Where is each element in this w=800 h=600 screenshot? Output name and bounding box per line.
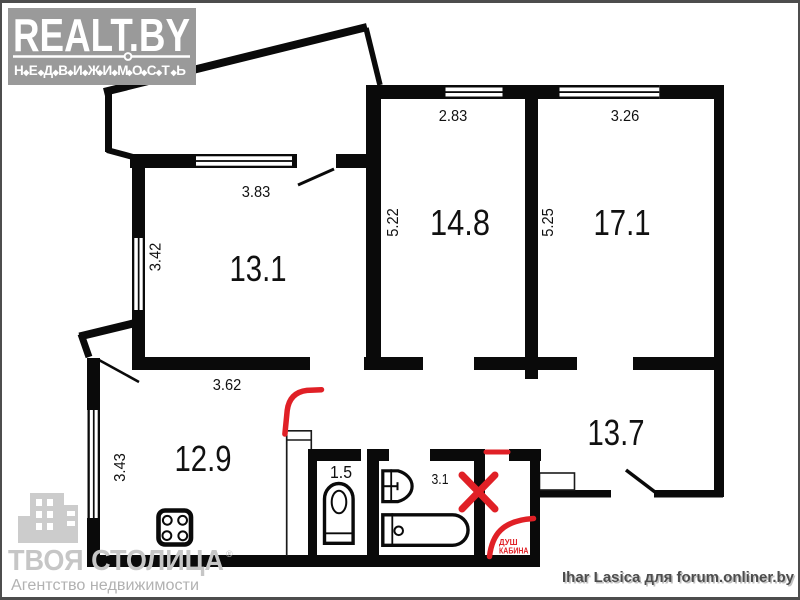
svg-text:3.83: 3.83 xyxy=(242,184,271,201)
svg-text:3.1: 3.1 xyxy=(432,471,449,488)
svg-text:5.22: 5.22 xyxy=(385,208,402,237)
svg-text:ТВОЯ СТОЛИЦА: ТВОЯ СТОЛИЦА xyxy=(8,545,224,577)
svg-text:13.1: 13.1 xyxy=(230,248,287,289)
svg-text:3.43: 3.43 xyxy=(112,453,129,482)
svg-text:Агентство недвижимости: Агентство недвижимости xyxy=(11,577,199,594)
svg-text:Ihar Lasica для forum.onliner.: Ihar Lasica для forum.onliner.by xyxy=(562,569,795,586)
svg-text:14.8: 14.8 xyxy=(430,202,490,243)
svg-text:3.62: 3.62 xyxy=(213,377,242,394)
svg-text:REALT.BY: REALT.BY xyxy=(13,9,190,61)
svg-text:17.1: 17.1 xyxy=(594,202,651,243)
svg-text:12.9: 12.9 xyxy=(175,438,232,479)
svg-text:3.42: 3.42 xyxy=(148,243,165,272)
svg-text:®: ® xyxy=(226,549,233,559)
svg-text:3.26: 3.26 xyxy=(611,108,640,125)
svg-text:5.25: 5.25 xyxy=(540,208,557,237)
svg-text:2.83: 2.83 xyxy=(439,108,468,125)
svg-text:КАБИНА: КАБИНА xyxy=(499,547,529,556)
svg-text:13.7: 13.7 xyxy=(588,412,645,453)
svg-text:1.5: 1.5 xyxy=(330,462,352,482)
